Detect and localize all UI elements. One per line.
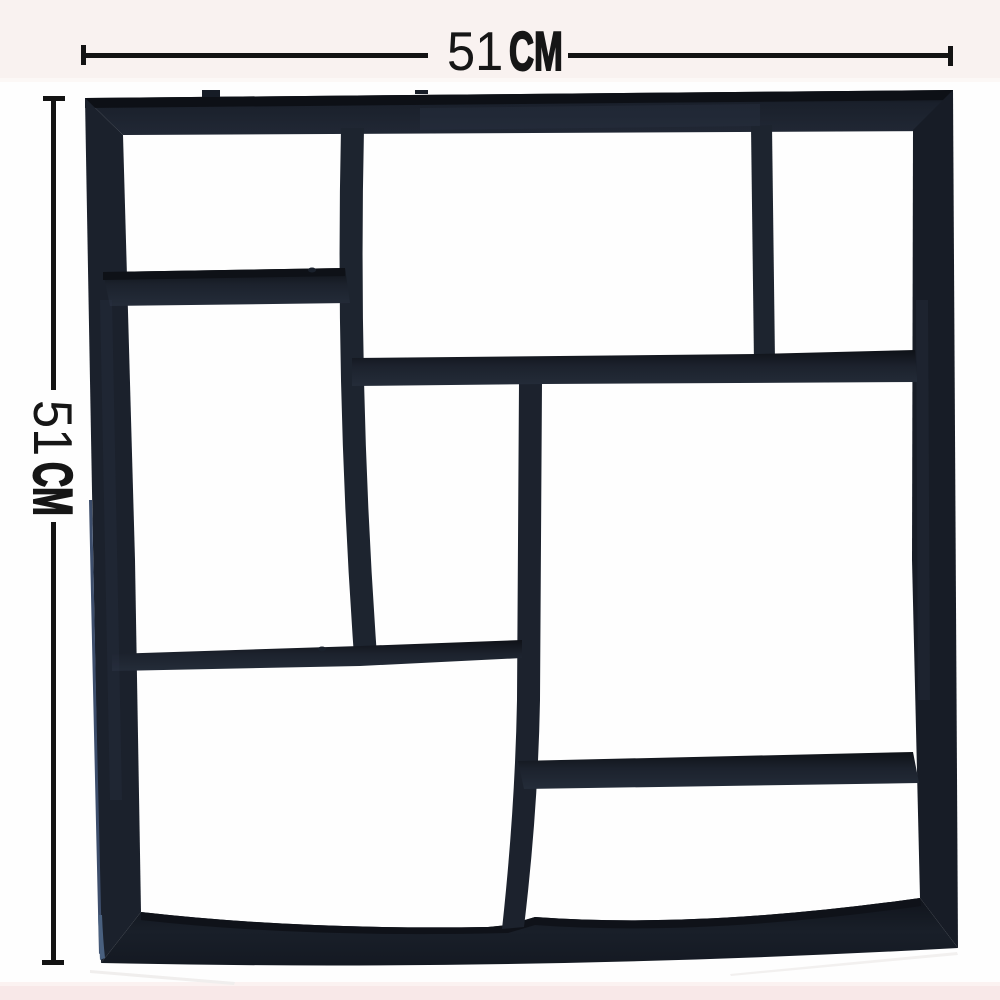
svg-text:51: 51 <box>447 21 503 82</box>
svg-text:CM: CM <box>509 20 563 82</box>
svg-text:CM: CM <box>22 462 84 516</box>
svg-text:51: 51 <box>22 400 83 456</box>
